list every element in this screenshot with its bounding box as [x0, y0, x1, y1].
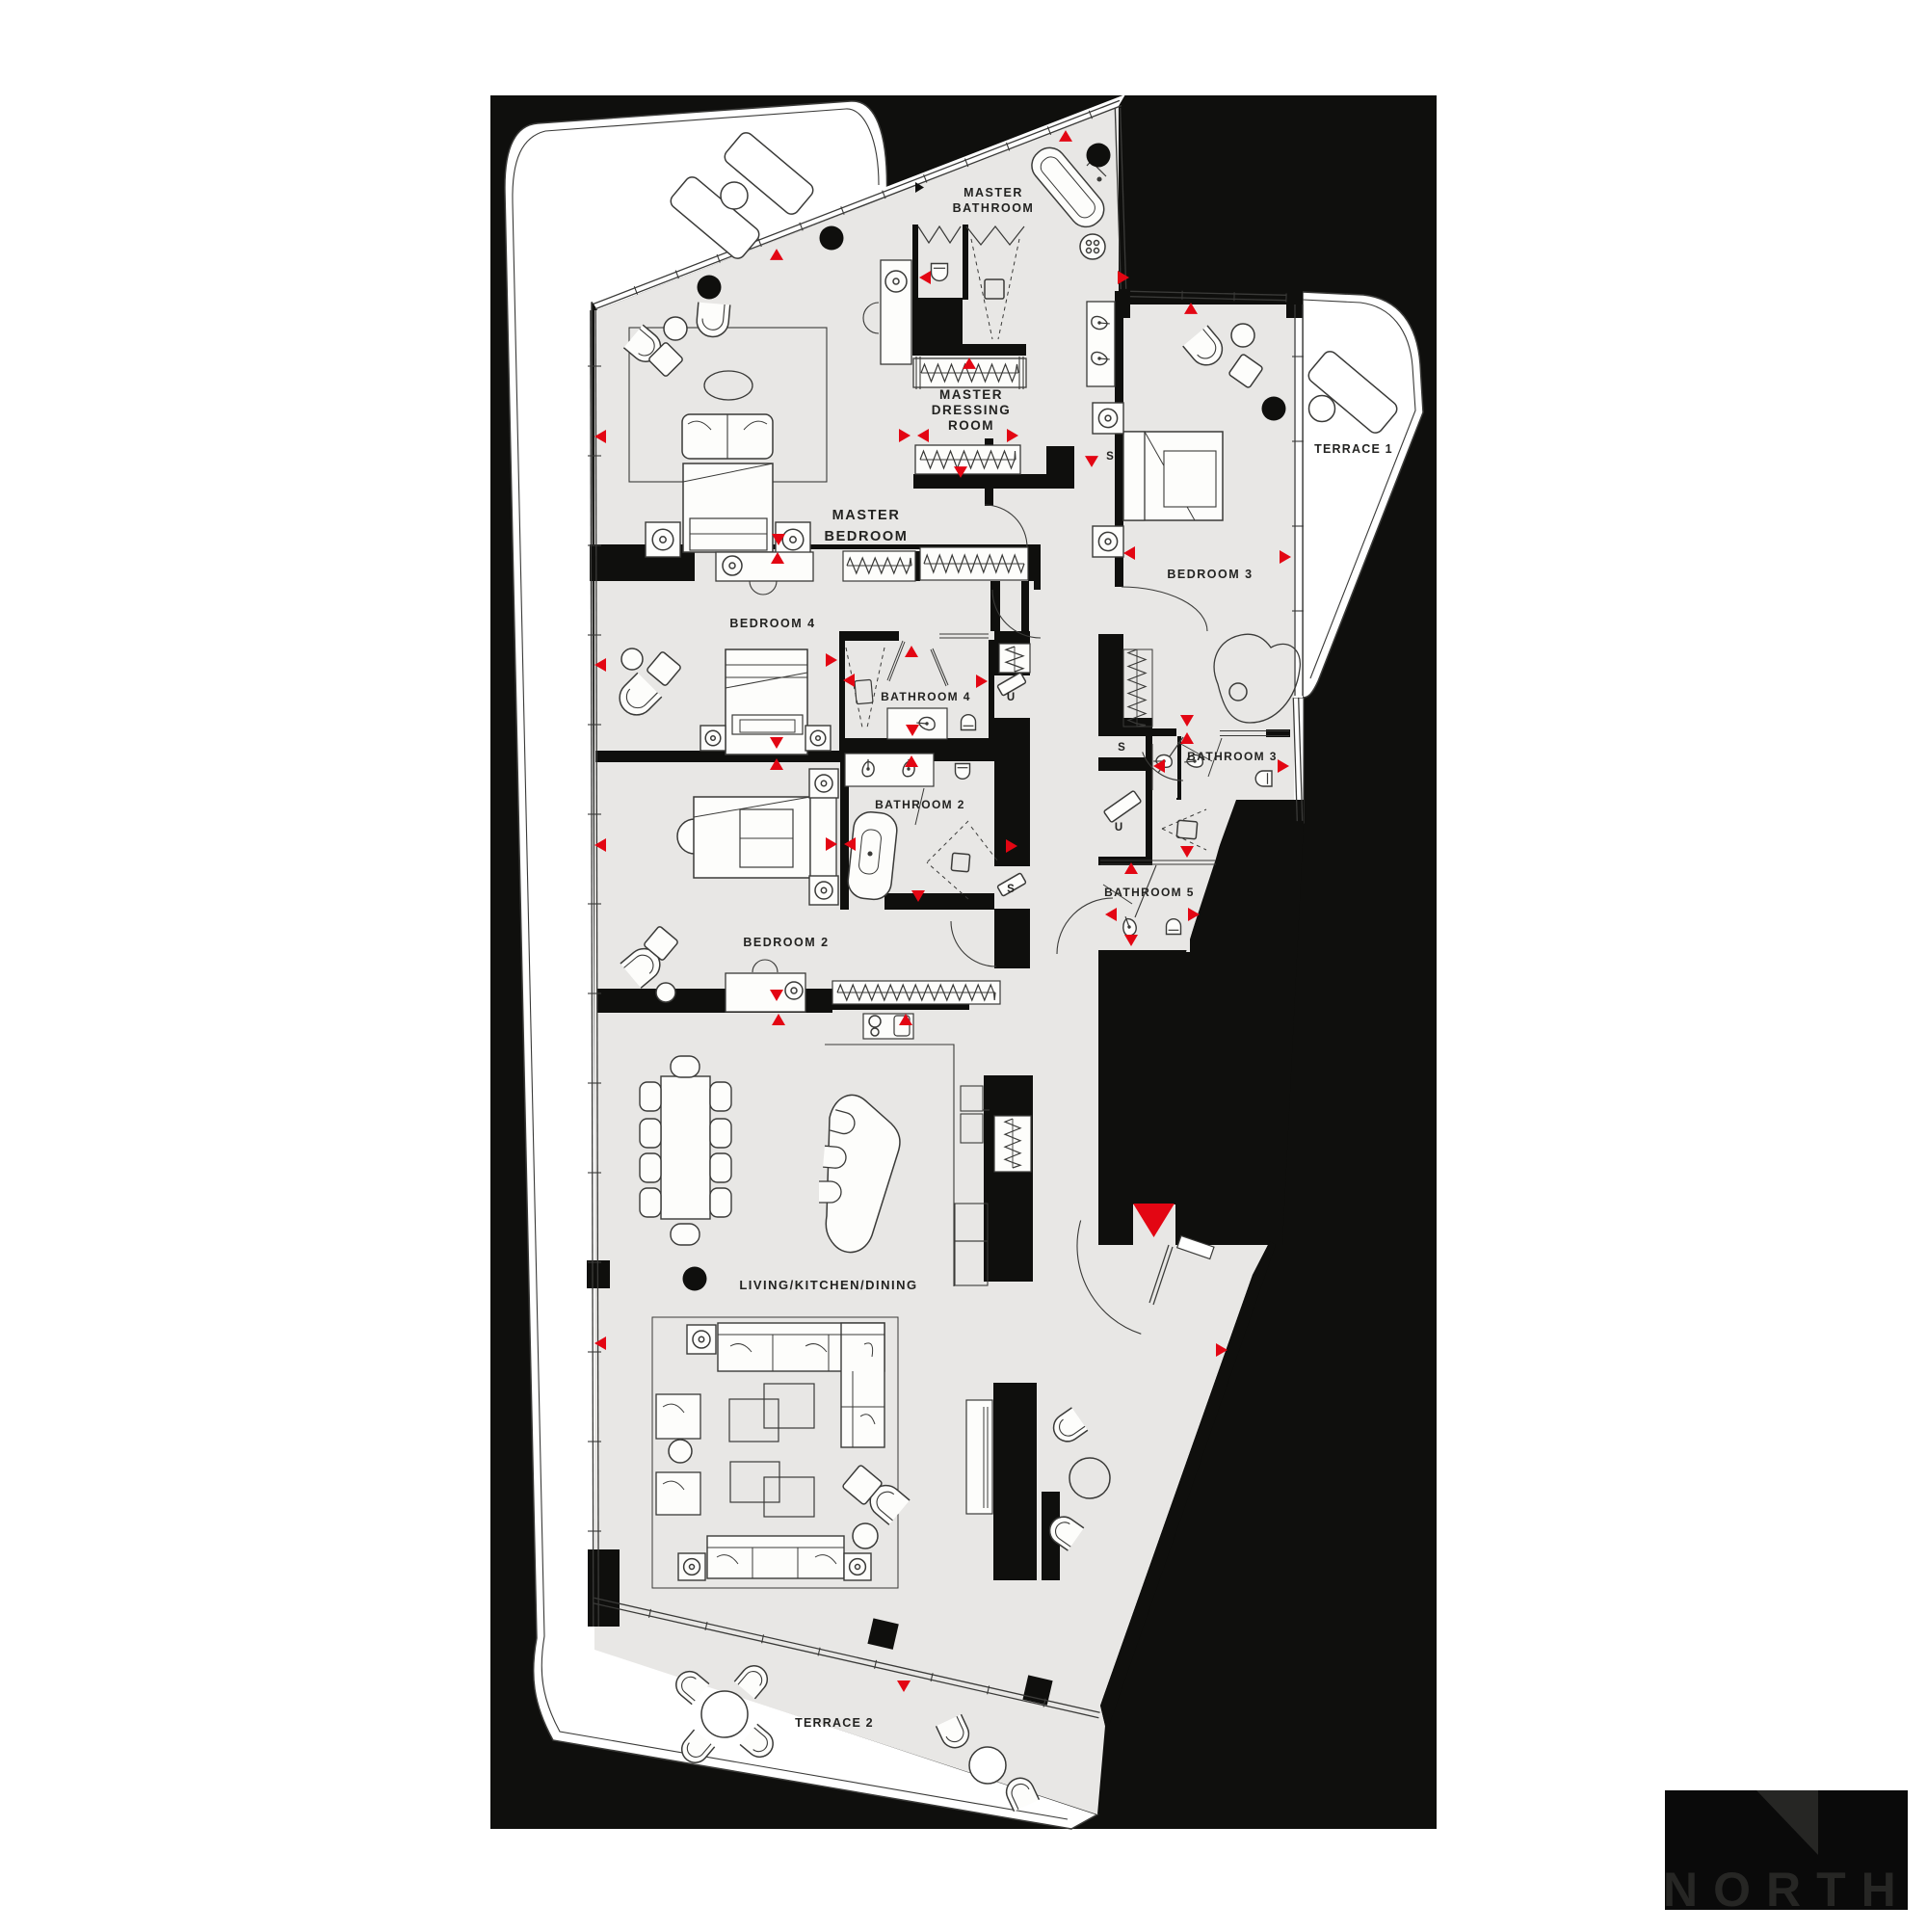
svg-text:TERRACE 2: TERRACE 2: [795, 1716, 874, 1730]
svg-text:MASTER: MASTER: [963, 186, 1023, 199]
svg-text:U: U: [1007, 692, 1015, 703]
svg-text:BATHROOM 2: BATHROOM 2: [875, 798, 965, 811]
svg-text:S: S: [1106, 451, 1114, 463]
svg-text:S: S: [1118, 742, 1125, 754]
svg-text:BATHROOM 3: BATHROOM 3: [1187, 750, 1278, 763]
svg-text:DRESSING: DRESSING: [932, 403, 1012, 417]
svg-text:U: U: [1115, 822, 1122, 834]
svg-text:S: S: [1007, 884, 1015, 895]
svg-text:BEDROOM 3: BEDROOM 3: [1167, 568, 1253, 581]
svg-text:BEDROOM: BEDROOM: [825, 529, 909, 544]
svg-text:MASTER: MASTER: [939, 387, 1003, 402]
svg-text:BATHROOM: BATHROOM: [953, 201, 1035, 215]
svg-text:BEDROOM 4: BEDROOM 4: [729, 617, 815, 630]
svg-text:NORTH: NORTH: [1663, 1863, 1912, 1917]
svg-text:BATHROOM 5: BATHROOM 5: [1104, 886, 1195, 899]
svg-text:LIVING/KITCHEN/DINING: LIVING/KITCHEN/DINING: [739, 1278, 917, 1292]
svg-text:ROOM: ROOM: [948, 418, 994, 433]
svg-text:MASTER: MASTER: [832, 508, 901, 523]
svg-text:TERRACE 1: TERRACE 1: [1314, 442, 1393, 456]
svg-text:BEDROOM 2: BEDROOM 2: [743, 936, 829, 949]
svg-text:BATHROOM 4: BATHROOM 4: [881, 690, 971, 703]
